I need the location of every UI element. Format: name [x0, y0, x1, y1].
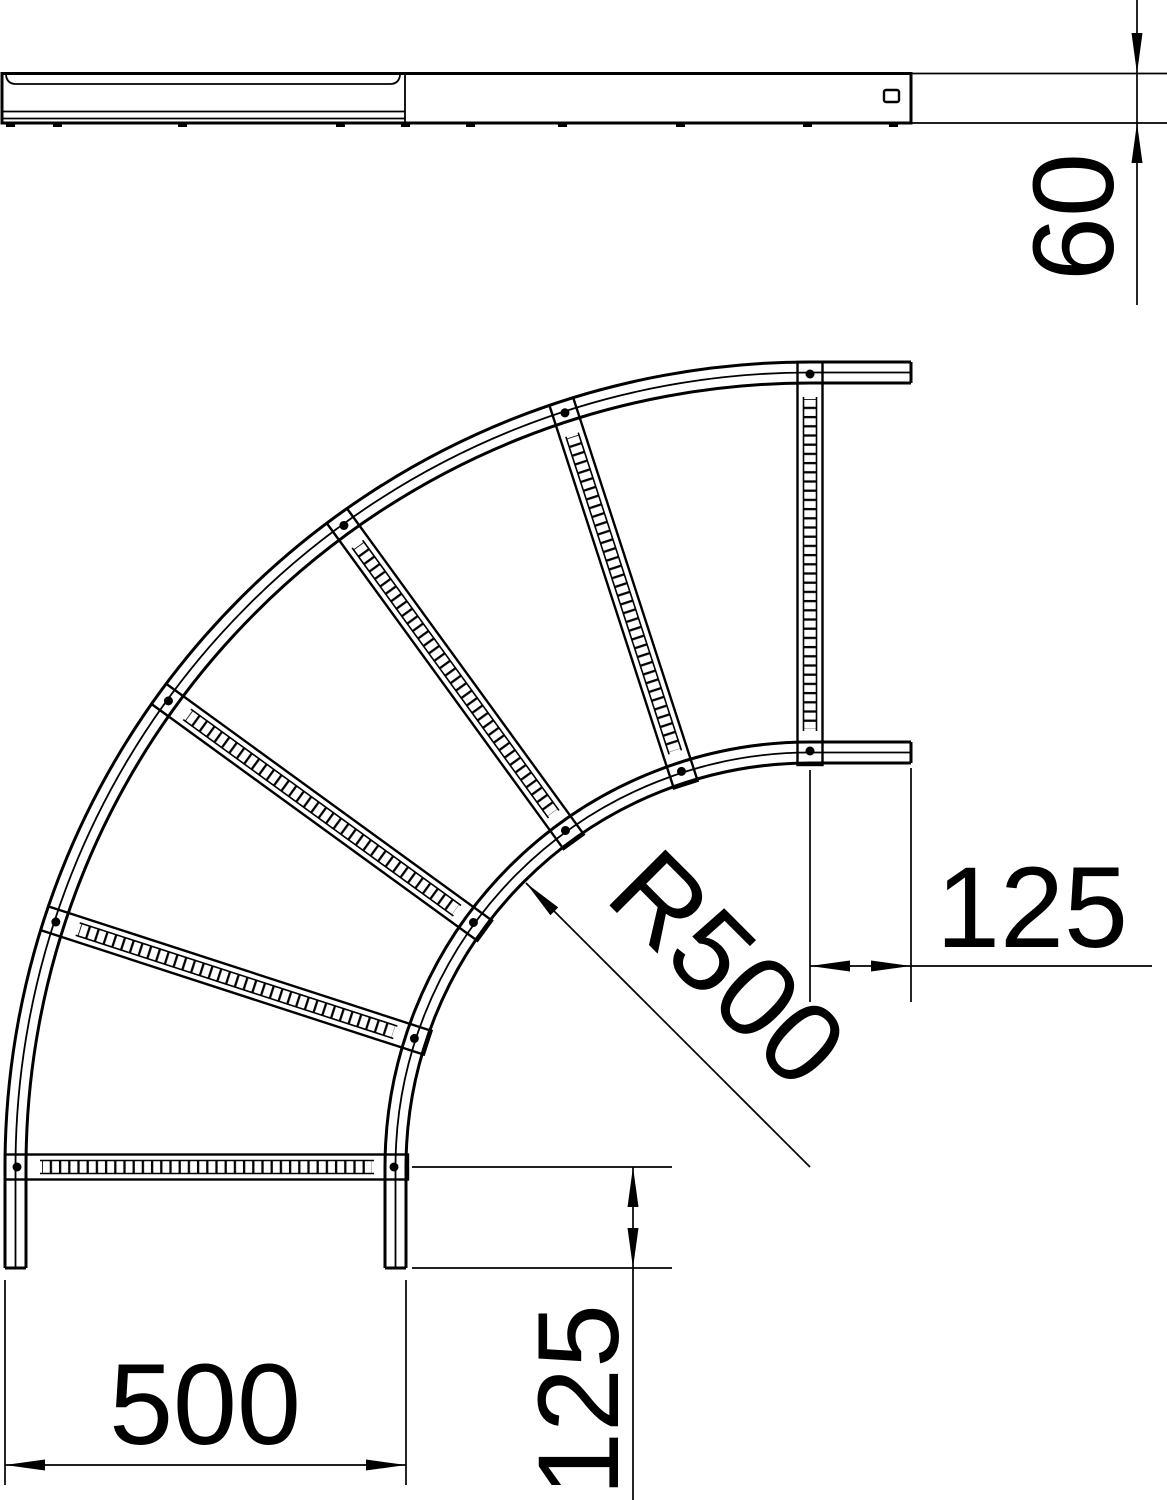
dimension-width-500: 500 — [5, 1280, 406, 1485]
arrowhead-right-icon — [366, 1460, 406, 1471]
rung — [327, 508, 584, 849]
technical-drawing-page: 60 — [0, 0, 1167, 1500]
arrowhead-radius-icon — [526, 883, 558, 915]
dimension-height-60: 60 — [911, 0, 1167, 305]
bend-top-view: R500 125 125 500 — [5, 362, 1152, 1500]
dim-label-60: 60 — [1010, 153, 1138, 281]
dim-label-500: 500 — [109, 1341, 301, 1469]
arrowhead-right-icon — [871, 961, 911, 972]
side-rail-lip-line — [6, 75, 400, 84]
dim-label-125-bottom: 125 — [515, 1304, 643, 1496]
arrowhead-down-icon — [628, 1228, 639, 1268]
arrowhead-left-icon — [5, 1460, 45, 1471]
rung — [5, 1155, 408, 1180]
side-rail-outline — [2, 74, 911, 124]
arrowhead-down-icon — [1132, 33, 1143, 74]
rung — [549, 398, 697, 789]
rung — [41, 906, 432, 1054]
rung — [798, 362, 823, 765]
dim-label-125-right: 125 — [936, 844, 1128, 972]
dimension-tangent-bottom-125: 125 — [412, 1167, 672, 1500]
cable-ladder-bend-drawing: 60 — [0, 0, 1167, 1500]
side-rail-mounting-hole — [884, 90, 899, 102]
dim-label-r500: R500 — [585, 826, 870, 1111]
arrowhead-up-icon — [628, 1167, 639, 1207]
dimension-tangent-right-125: 125 — [810, 768, 1152, 1002]
rung — [151, 684, 492, 941]
side-profile-view — [2, 74, 911, 128]
dimension-radius-r500: R500 — [526, 826, 870, 1167]
